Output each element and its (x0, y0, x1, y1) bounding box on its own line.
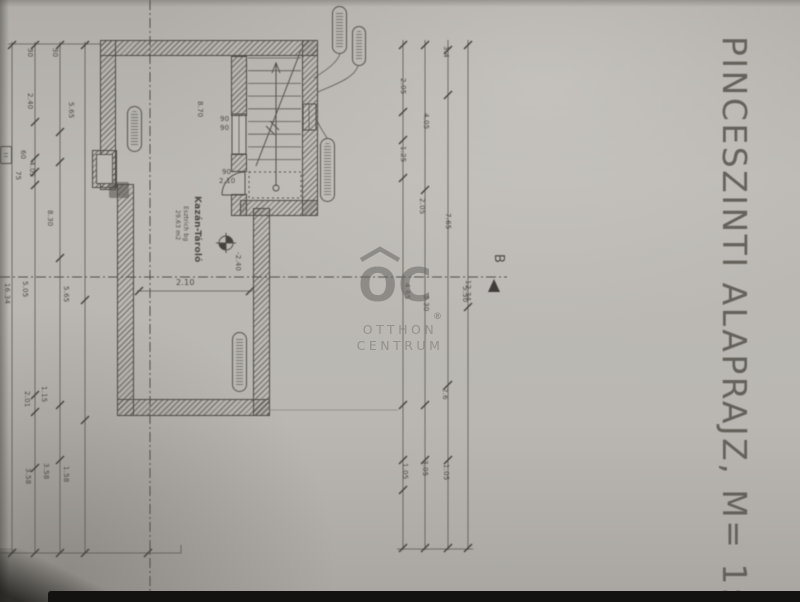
room-name: Kazán-Tároló (192, 196, 201, 263)
dim-label: 30 (26, 48, 33, 57)
dim-label: 2.05 (418, 198, 425, 214)
dim-label: 60 (19, 150, 26, 159)
callout-bubble (352, 26, 366, 66)
dim-label: 90 (222, 169, 231, 176)
wall-top (100, 40, 318, 56)
watermark-logo: OC® (344, 262, 456, 322)
photo-edge-shadow-left (0, 0, 9, 602)
dim-label: 7.65 (444, 213, 451, 229)
photo-edge-dark-bar (48, 591, 800, 602)
dim-label: 3.58 (42, 463, 49, 479)
dim-label: 2.6 (441, 388, 448, 400)
level-label: -2.40 (234, 252, 241, 271)
dim-label: 2.05 (399, 78, 406, 94)
sheet-title: PINCESZINTI ALAPRAJZ, M= 1:100 (715, 36, 754, 602)
wall-interior-pier (231, 194, 247, 216)
dim-label: 5.65 (62, 286, 69, 302)
dim-label: 8.30 (46, 210, 53, 226)
dim-label: 3.58 (24, 468, 31, 484)
dim-label: 75 (14, 171, 21, 180)
wall-left-lower (117, 184, 134, 416)
wall-interior-mid (231, 154, 247, 172)
wall-right-lower (253, 208, 270, 416)
section-label: B (491, 254, 505, 263)
dim-label: 2.10 (176, 279, 195, 287)
dim-label: 1.15 (40, 386, 47, 402)
dim-label: 30 (51, 48, 58, 57)
wall-bottom (117, 399, 270, 416)
dim-label: 90 (220, 125, 229, 132)
dim-label: 8.70 (196, 101, 203, 117)
watermark-line1: OTTHON (344, 322, 456, 338)
callout-bubble (232, 332, 247, 392)
dim-label: 1.58 (62, 466, 69, 482)
wall-right-upper (302, 40, 318, 216)
dim-label: 5.05 (21, 281, 28, 297)
dim-label: 5.65 (67, 102, 74, 118)
registered-icon: ® (433, 312, 442, 322)
wall-interior-upper (231, 56, 247, 116)
room-area: 29,63 m2 (174, 210, 180, 240)
dim-label: 90 (220, 116, 229, 123)
dim-label: 4.05 (28, 161, 35, 177)
callout-bubble (127, 106, 142, 152)
dim-label: 3.4 (442, 46, 449, 58)
niche-opening (96, 154, 113, 184)
dim-label: 2.10 (219, 178, 235, 185)
photo-edge-shadow-top (0, 0, 800, 7)
dim-label: 4.05 (422, 113, 429, 129)
watermark-line2: CENTRUM (344, 338, 456, 354)
dim-label: 1.25 (399, 146, 406, 162)
blueprint-photo: 30302.405.65604.05758.3016.345.055.652.0… (0, 0, 800, 602)
dim-label: 2.01 (23, 391, 30, 407)
callout-bubble (332, 6, 347, 54)
callout-bubble (320, 138, 335, 202)
otthon-centrum-watermark: OC® OTTHON CENTRUM (344, 246, 456, 353)
dim-label: 1.05 (442, 464, 449, 480)
room-finish: Esztrich bg (182, 206, 188, 241)
dim-label: 12.34 (464, 280, 471, 301)
dim-label: 2.40 (26, 93, 33, 109)
dim-label: 3.05 (421, 460, 428, 476)
dim-label: 1.05 (401, 463, 408, 479)
